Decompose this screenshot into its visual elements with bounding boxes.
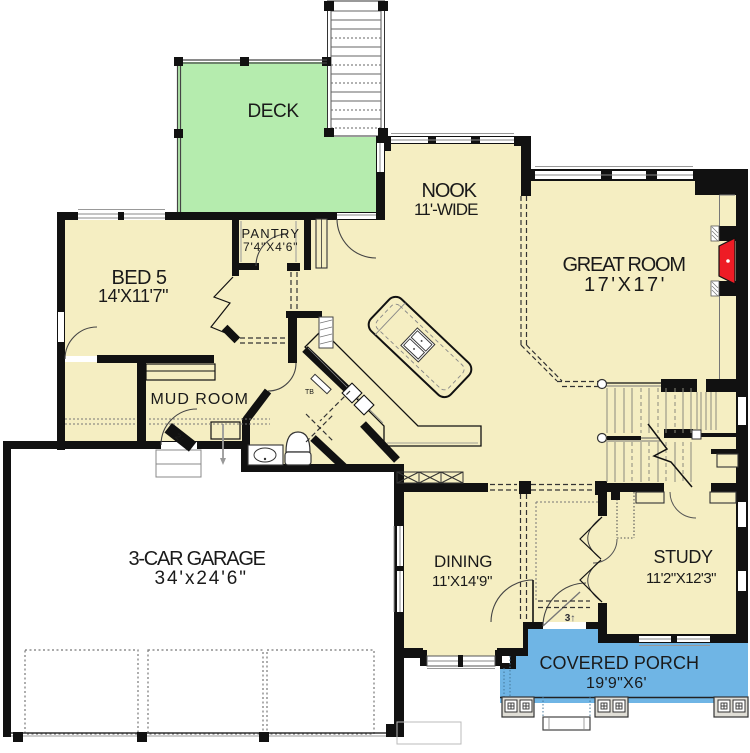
svg-text:DINING: DINING [434, 552, 494, 571]
svg-text:34'x24'6": 34'x24'6" [155, 568, 248, 589]
svg-text:17'X17': 17'X17' [584, 274, 666, 296]
svg-text:MUD ROOM: MUD ROOM [151, 391, 250, 408]
svg-text:DECK: DECK [248, 101, 301, 122]
svg-text:STUDY: STUDY [654, 547, 715, 567]
svg-text:GREAT ROOM: GREAT ROOM [563, 254, 688, 276]
svg-text:3-CAR GARAGE: 3-CAR GARAGE [129, 548, 268, 570]
svg-text:PANTRY: PANTRY [242, 226, 301, 241]
svg-text:11'X14'9": 11'X14'9" [432, 573, 494, 590]
svg-text:11'-WIDE: 11'-WIDE [414, 200, 480, 219]
svg-text:14'X11'7": 14'X11'7" [98, 286, 170, 306]
svg-text:7'4"X4'6": 7'4"X4'6" [243, 240, 299, 254]
svg-text:11'2"X12'3": 11'2"X12'3" [646, 570, 718, 587]
svg-text:TB: TB [305, 389, 314, 396]
svg-text:3↑: 3↑ [565, 613, 576, 624]
svg-text:COVERED PORCH: COVERED PORCH [540, 653, 701, 673]
svg-text:NOOK: NOOK [422, 180, 479, 202]
svg-text:19'9"X6': 19'9"X6' [586, 675, 648, 692]
